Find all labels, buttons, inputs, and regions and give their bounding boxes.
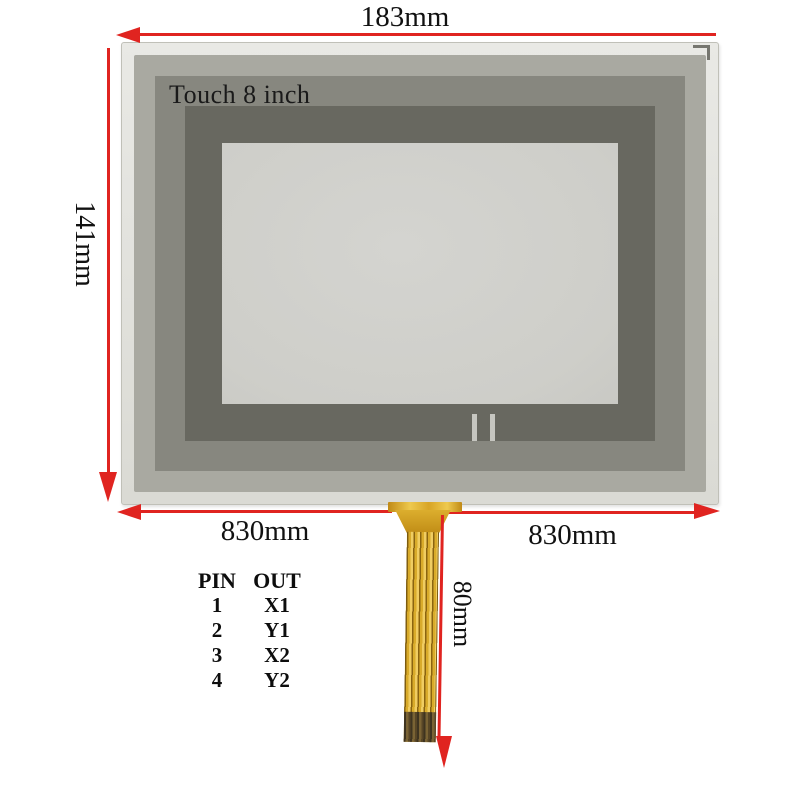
bottom-right-dimension-line — [441, 511, 694, 514]
bottom-left-dimension-line — [139, 510, 392, 513]
pin-number: 4 — [188, 668, 246, 693]
bottom-left-dimension-label: 830mm — [190, 515, 340, 548]
pin-number: 2 — [188, 618, 246, 643]
product-image: Touch 8 inch 183mm 141mm 830mm 830mm 80m… — [0, 0, 800, 800]
left-arrowhead-icon — [116, 27, 140, 43]
down-arrowhead-icon — [99, 472, 117, 502]
pin-signal: X2 — [246, 643, 308, 668]
frame-corner-mark — [693, 45, 710, 60]
cable-contact-fingers — [404, 712, 436, 742]
left-height-dimension-label: 141mm — [68, 198, 100, 290]
touch-panel-outer-frame — [121, 42, 719, 505]
pin-table-header-out: OUT — [246, 568, 308, 593]
tail-length-dimension-label: 80mm — [447, 578, 477, 650]
touch-panel-frame-band — [134, 55, 706, 492]
frame-trace-notch — [490, 414, 495, 441]
pin-signal: Y2 — [246, 668, 308, 693]
pin-table-header-pin: PIN — [188, 568, 246, 593]
touch-panel-frame-dark-border — [185, 106, 655, 441]
pin-signal: Y1 — [246, 618, 308, 643]
right-arrowhead-icon — [694, 503, 720, 519]
left-arrowhead-icon — [117, 504, 141, 520]
touch-panel-glass — [222, 143, 618, 404]
pin-number: 1 — [188, 593, 246, 618]
pin-out-table: PIN OUT 1 X1 2 Y1 3 X2 4 Y2 — [188, 568, 308, 693]
top-width-dimension-label: 183mm — [325, 1, 485, 34]
frame-trace-notch — [472, 414, 477, 441]
pin-number: 3 — [188, 643, 246, 668]
panel-size-label: Touch 8 inch — [169, 80, 310, 110]
bottom-right-dimension-label: 830mm — [495, 519, 650, 552]
flex-cable-ribbon — [404, 532, 439, 742]
down-arrowhead-icon — [436, 736, 452, 768]
left-height-dimension-line — [107, 48, 110, 472]
pin-signal: X1 — [246, 593, 308, 618]
touch-panel-frame-band-inner — [155, 76, 685, 471]
